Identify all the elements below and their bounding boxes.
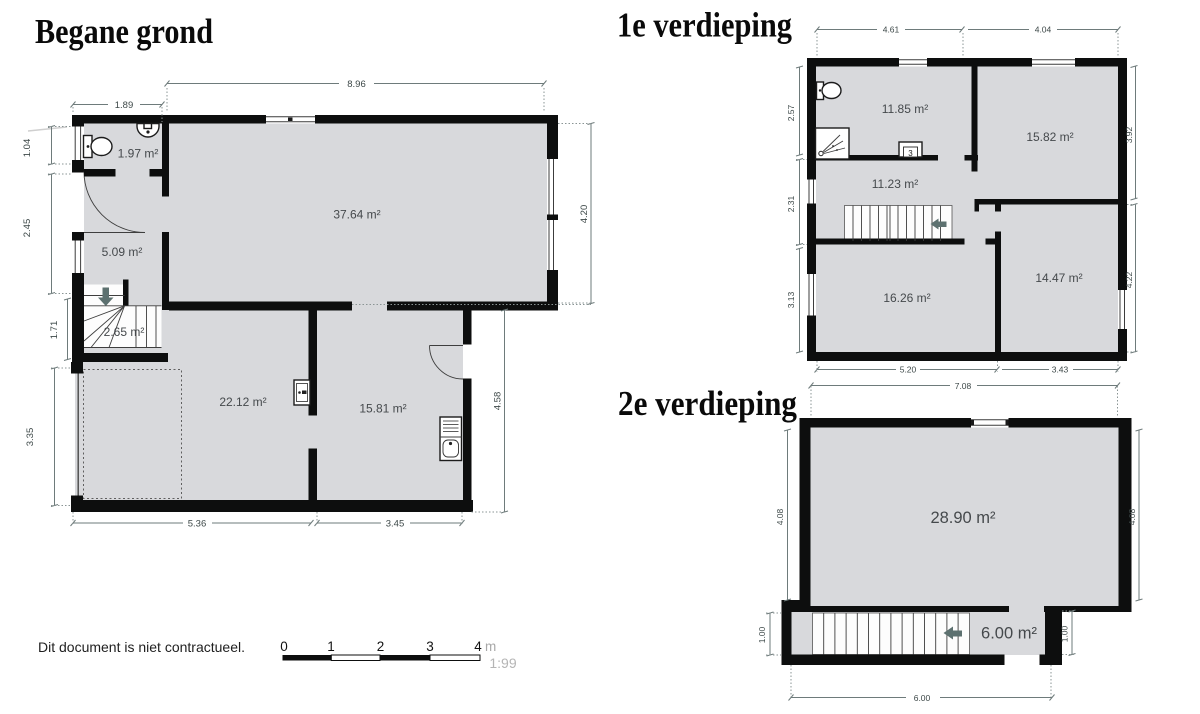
- svg-text:11.23 m²: 11.23 m²: [872, 177, 918, 191]
- svg-text:8.96: 8.96: [347, 79, 366, 90]
- svg-text:1:99: 1:99: [489, 655, 516, 671]
- svg-text:0: 0: [280, 639, 288, 654]
- svg-text:22.12 m²: 22.12 m²: [219, 395, 266, 409]
- svg-text:2.31: 2.31: [786, 195, 796, 212]
- svg-text:3: 3: [908, 149, 913, 158]
- svg-text:4.22: 4.22: [1124, 271, 1134, 288]
- svg-text:1.04: 1.04: [22, 139, 33, 158]
- svg-text:1.00: 1.00: [757, 626, 767, 643]
- svg-text:6.00: 6.00: [914, 693, 931, 703]
- svg-text:4.08: 4.08: [1127, 508, 1137, 525]
- svg-text:7.08: 7.08: [955, 381, 972, 391]
- svg-text:Dit document is niet contractu: Dit document is niet contractueel.: [38, 639, 245, 655]
- svg-text:3: 3: [426, 639, 434, 654]
- svg-text:5.20: 5.20: [900, 365, 917, 375]
- svg-text:1.89: 1.89: [115, 100, 134, 111]
- svg-text:16.26 m²: 16.26 m²: [883, 291, 930, 305]
- svg-text:3.45: 3.45: [386, 519, 405, 530]
- svg-text:4.58: 4.58: [493, 392, 504, 411]
- svg-text:1e verdieping: 1e verdieping: [617, 6, 792, 45]
- svg-text:11.85 m²: 11.85 m²: [882, 102, 928, 116]
- svg-text:28.90 m²: 28.90 m²: [930, 509, 996, 527]
- svg-text:4: 4: [474, 639, 482, 654]
- svg-text:1.00: 1.00: [1060, 625, 1070, 642]
- svg-text:1.97 m²: 1.97 m²: [118, 147, 159, 161]
- svg-text:1: 1: [327, 639, 335, 654]
- svg-text:4.61: 4.61: [883, 25, 900, 35]
- svg-text:3.92: 3.92: [1124, 126, 1134, 143]
- svg-text:2.45: 2.45: [22, 219, 33, 238]
- svg-text:2e verdieping: 2e verdieping: [618, 384, 797, 423]
- svg-text:3.35: 3.35: [25, 428, 36, 447]
- svg-text:14.47 m²: 14.47 m²: [1035, 271, 1082, 285]
- svg-text:5.09 m²: 5.09 m²: [102, 245, 143, 259]
- svg-text:4.04: 4.04: [1035, 25, 1052, 35]
- svg-text:3.43: 3.43: [1052, 365, 1069, 375]
- svg-text:4.08: 4.08: [775, 508, 785, 525]
- svg-text:Begane grond: Begane grond: [35, 12, 213, 51]
- svg-text:m: m: [485, 639, 496, 654]
- svg-text:37.64 m²: 37.64 m²: [333, 208, 380, 222]
- svg-text:2: 2: [377, 639, 385, 654]
- svg-text:3.13: 3.13: [786, 291, 796, 308]
- svg-text:15.81 m²: 15.81 m²: [359, 402, 406, 416]
- svg-text:5.36: 5.36: [188, 519, 207, 530]
- svg-text:6.00 m²: 6.00 m²: [981, 625, 1037, 643]
- svg-text:4.20: 4.20: [579, 205, 590, 224]
- svg-text:2.57: 2.57: [786, 104, 796, 121]
- svg-text:15.82 m²: 15.82 m²: [1026, 130, 1073, 144]
- svg-text:2.65 m²: 2.65 m²: [104, 325, 145, 339]
- svg-text:1.71: 1.71: [49, 321, 60, 340]
